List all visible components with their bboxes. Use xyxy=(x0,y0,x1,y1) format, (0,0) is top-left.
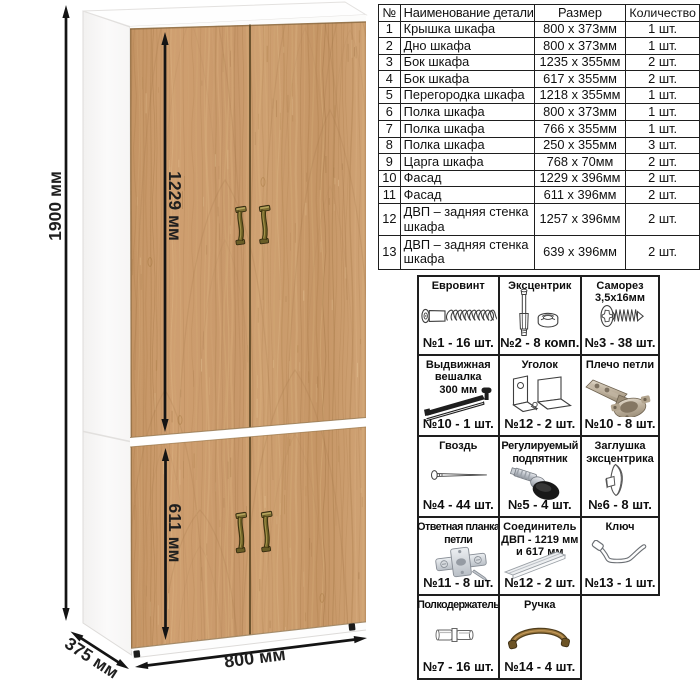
svg-text:611 мм: 611 мм xyxy=(165,504,185,563)
svg-text:800 мм: 800 мм xyxy=(223,644,287,672)
svg-text:1229 мм: 1229 мм xyxy=(165,171,185,241)
svg-text:1900 мм: 1900 мм xyxy=(45,171,65,241)
